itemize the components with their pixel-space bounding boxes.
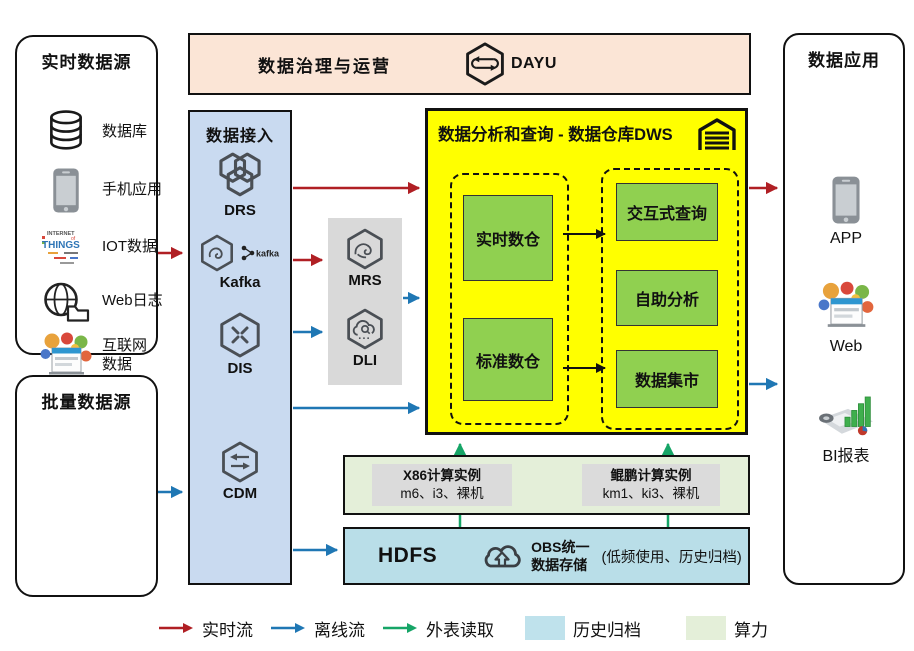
compute-panel: X86计算实例 m6、i3、裸机 鲲鹏计算实例 km1、ki3、裸机 [343, 455, 750, 515]
legend-item-compute: 算力 [686, 616, 768, 641]
legend-swatch-compute [686, 616, 726, 640]
dws-title: 数据分析和查询 - 数据仓库DWS [438, 121, 673, 145]
legend: 实时流 离线流 外表读取 历史归档 算力 [158, 610, 785, 646]
compute-instance-kunpeng: 鲲鹏计算实例 km1、ki3、裸机 [582, 464, 720, 506]
application-label: BI报表 [822, 442, 869, 466]
list-item: Web日志 [39, 278, 167, 324]
source-label-line2: 数据 [102, 356, 132, 373]
architecture-diagram: 实时数据源 数据库 手机应用 [0, 0, 914, 651]
service-mrs: MRS [328, 228, 402, 289]
legend-arrow-realtime-icon [158, 621, 194, 635]
database-icon [39, 109, 93, 155]
service-label: CDM [188, 485, 292, 502]
service-label: Kafka [188, 274, 292, 291]
legend-label: 离线流 [314, 616, 365, 641]
dayu-logo: DAYU [463, 42, 557, 86]
batch-sources-panel: 批量数据源 数据库 [15, 375, 158, 597]
service-label: DLI [328, 352, 402, 369]
legend-label: 外表读取 [426, 616, 494, 641]
service-label: DRS [188, 202, 292, 219]
node-realtime-warehouse: 实时数仓 [463, 195, 553, 281]
banner-title: 数据治理与运营 [258, 52, 391, 77]
svg-text:THINGS: THINGS [42, 240, 80, 251]
legend-item-external-read: 外表读取 [382, 616, 494, 641]
list-item: BI报表 [785, 387, 907, 466]
list-item: APP [785, 175, 907, 248]
internet-collage-icon [39, 332, 93, 380]
legend-label: 历史归档 [573, 616, 641, 641]
node-interactive-query: 交互式查询 [616, 183, 718, 241]
list-item: Web [785, 281, 907, 356]
node-standard-warehouse: 标准数仓 [463, 318, 553, 401]
panel-title: 批量数据源 [17, 377, 156, 413]
instance-name: 鲲鹏计算实例 [611, 467, 692, 485]
realtime-sources-panel: 实时数据源 数据库 手机应用 [15, 35, 158, 355]
source-label: 手机应用 [102, 181, 162, 200]
source-label: Web日志 [102, 292, 163, 311]
governance-banner: 数据治理与运营 DAYU [188, 33, 751, 95]
application-label: Web [830, 338, 863, 356]
list-item: INTERNET of THINGS IOT数据 [39, 223, 167, 271]
application-label: APP [830, 230, 862, 248]
service-label: MRS [328, 272, 402, 289]
obs-cloud-icon [479, 537, 525, 575]
source-label: 互联网 数据 [102, 337, 147, 375]
instance-specs: m6、i3、裸机 [400, 485, 483, 503]
globe-folder-icon [39, 280, 93, 323]
compute-instance-x86: X86计算实例 m6、i3、裸机 [372, 464, 512, 506]
dis-hexagon-icon [188, 312, 292, 358]
instance-name: X86计算实例 [403, 467, 481, 485]
dli-hexagon-icon [328, 308, 402, 350]
panel-title: 实时数据源 [17, 37, 156, 73]
dayu-hexagon-icon [463, 42, 507, 86]
obs-label: OBS统一 数据存储 [531, 538, 589, 574]
legend-swatch-archive [525, 616, 565, 640]
drs-hexagon-icon [188, 150, 292, 200]
legend-item-offline: 离线流 [270, 616, 365, 641]
internet-collage-icon [817, 281, 875, 333]
legend-label: 算力 [734, 616, 768, 641]
instance-specs: km1、ki3、裸机 [603, 485, 700, 503]
source-label: IOT数据 [102, 238, 157, 257]
obs-label-line2: 数据存储 [531, 557, 587, 573]
source-label-line1: 互联网 [102, 337, 147, 354]
iot-wordcloud-icon: INTERNET of THINGS [39, 225, 93, 269]
service-cdm: CDM [188, 441, 292, 502]
node-selfservice-analysis: 自助分析 [616, 270, 718, 326]
obs-label-line1: OBS统一 [531, 539, 589, 555]
service-dli: DLI [328, 308, 402, 369]
mobile-phone-icon [830, 175, 862, 225]
legend-label: 实时流 [202, 616, 253, 641]
panel-title: 数据应用 [785, 35, 903, 71]
source-label: 数据库 [102, 123, 147, 142]
bi-chart-icon [817, 387, 875, 437]
legend-item-archive: 历史归档 [525, 616, 641, 641]
legend-arrow-external-icon [382, 621, 418, 635]
warehouse-icon [696, 116, 738, 152]
dws-panel: 数据分析和查询 - 数据仓库DWS 实时数仓 标准数仓 交互式查询 自助分析 数… [425, 108, 748, 435]
kafka-logo-text: kafka [256, 249, 280, 259]
service-kafka: kafka Kafka [188, 234, 292, 291]
kafka-hexagon-icon: kafka [188, 234, 292, 272]
storage-panel: HDFS OBS统一 数据存储 (低频使用、历史归档) [343, 527, 750, 585]
service-dis: DIS [188, 312, 292, 377]
panel-title: 数据接入 [190, 112, 290, 146]
hdfs-label: HDFS [378, 544, 437, 568]
list-item: 手机应用 [39, 166, 167, 214]
node-data-mart: 数据集市 [616, 350, 718, 408]
service-label: DIS [188, 360, 292, 377]
storage-note: (低频使用、历史归档) [602, 546, 742, 567]
mobile-phone-icon [39, 167, 93, 214]
service-drs: DRS [188, 150, 292, 219]
cdm-hexagon-icon [188, 441, 292, 483]
legend-arrow-offline-icon [270, 621, 306, 635]
data-applications-panel: 数据应用 APP [783, 33, 905, 585]
kafka-logo: kafka [239, 243, 283, 263]
mrs-hexagon-icon [328, 228, 402, 270]
list-item: 数据库 [39, 109, 167, 155]
product-name: DAYU [511, 55, 557, 73]
legend-item-realtime: 实时流 [158, 616, 253, 641]
